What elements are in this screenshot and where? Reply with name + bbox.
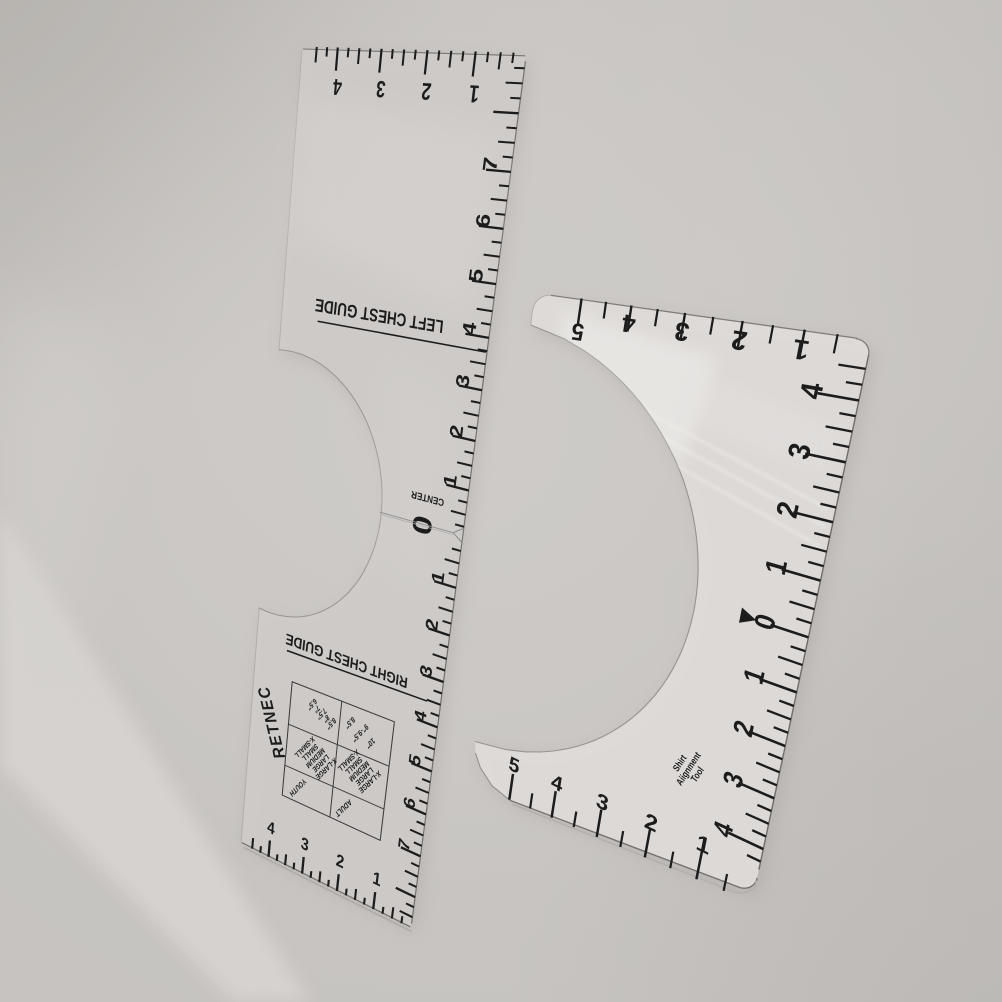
svg-text:5: 5 [465,267,488,284]
svg-text:6: 6 [471,212,495,229]
svg-text:4: 4 [332,73,343,99]
svg-text:7: 7 [478,156,502,172]
svg-text:4: 4 [458,320,481,337]
svg-text:3: 3 [452,372,474,389]
svg-text:4: 4 [266,818,275,840]
svg-text:5: 5 [507,753,521,779]
svg-text:3: 3 [300,833,310,855]
svg-text:2: 2 [335,849,345,872]
svg-text:1: 1 [371,867,382,890]
